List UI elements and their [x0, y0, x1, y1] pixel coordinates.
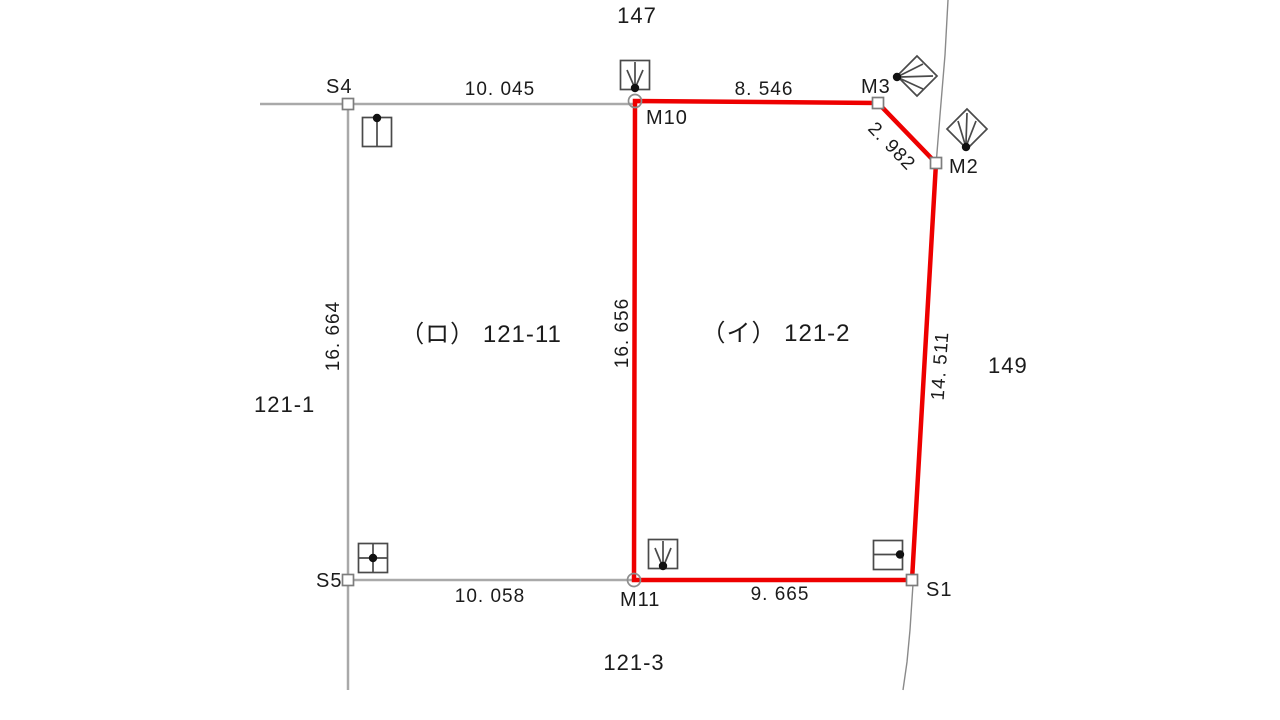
dimension-s4-s5: 16. 664	[323, 301, 345, 371]
point-label-m3: M3	[861, 76, 891, 99]
boundary-line-lower	[903, 584, 913, 690]
parcel-label-121-11: （ロ） 121-11	[400, 314, 562, 349]
survey-monument-symbol-s1	[874, 541, 905, 570]
point-marker-s5	[343, 575, 354, 586]
boundary-line-upper	[936, 0, 948, 165]
point-marker-m3	[873, 98, 884, 109]
point-marker-m2	[931, 158, 942, 169]
point-label-m2: M2	[949, 156, 979, 179]
dimension-m10-m11: 16. 656	[612, 298, 634, 368]
point-label-m10: M10	[646, 107, 688, 130]
survey-monument-symbol-s4	[363, 114, 392, 147]
point-label-s5: S5	[316, 570, 342, 593]
dimension-s5-m11: 10. 058	[455, 586, 525, 608]
point-marker-s1	[907, 575, 918, 586]
lot-number-121-3: 121-3	[603, 650, 664, 676]
survey-monument-symbol-m10	[621, 61, 650, 93]
dimension-s1-m11: 9. 665	[751, 584, 810, 606]
survey-monument-symbol-m11	[649, 540, 678, 571]
survey-plan-linework	[0, 0, 1280, 720]
lot-number-147: 147	[617, 3, 657, 29]
point-label-m11: M11	[620, 589, 660, 612]
parcel-label-121-2: （イ） 121-2	[701, 313, 850, 348]
dimension-s4-m10: 10. 045	[465, 79, 535, 101]
point-label-s4: S4	[326, 76, 352, 99]
cadastral-survey-drawing: 147 149 121-1 121-3 （ロ） 121-11 （イ） 121-2…	[0, 0, 1280, 720]
dimension-m10-m3: 8. 546	[735, 79, 794, 101]
point-label-s1: S1	[926, 579, 952, 602]
point-marker-s4	[343, 99, 354, 110]
survey-monument-symbol-m3	[893, 56, 937, 96]
lot-number-149: 149	[988, 353, 1028, 379]
survey-monument-symbol-s5	[359, 544, 388, 573]
survey-monument-symbol-m2	[947, 109, 987, 151]
lot-number-121-1: 121-1	[254, 392, 315, 418]
